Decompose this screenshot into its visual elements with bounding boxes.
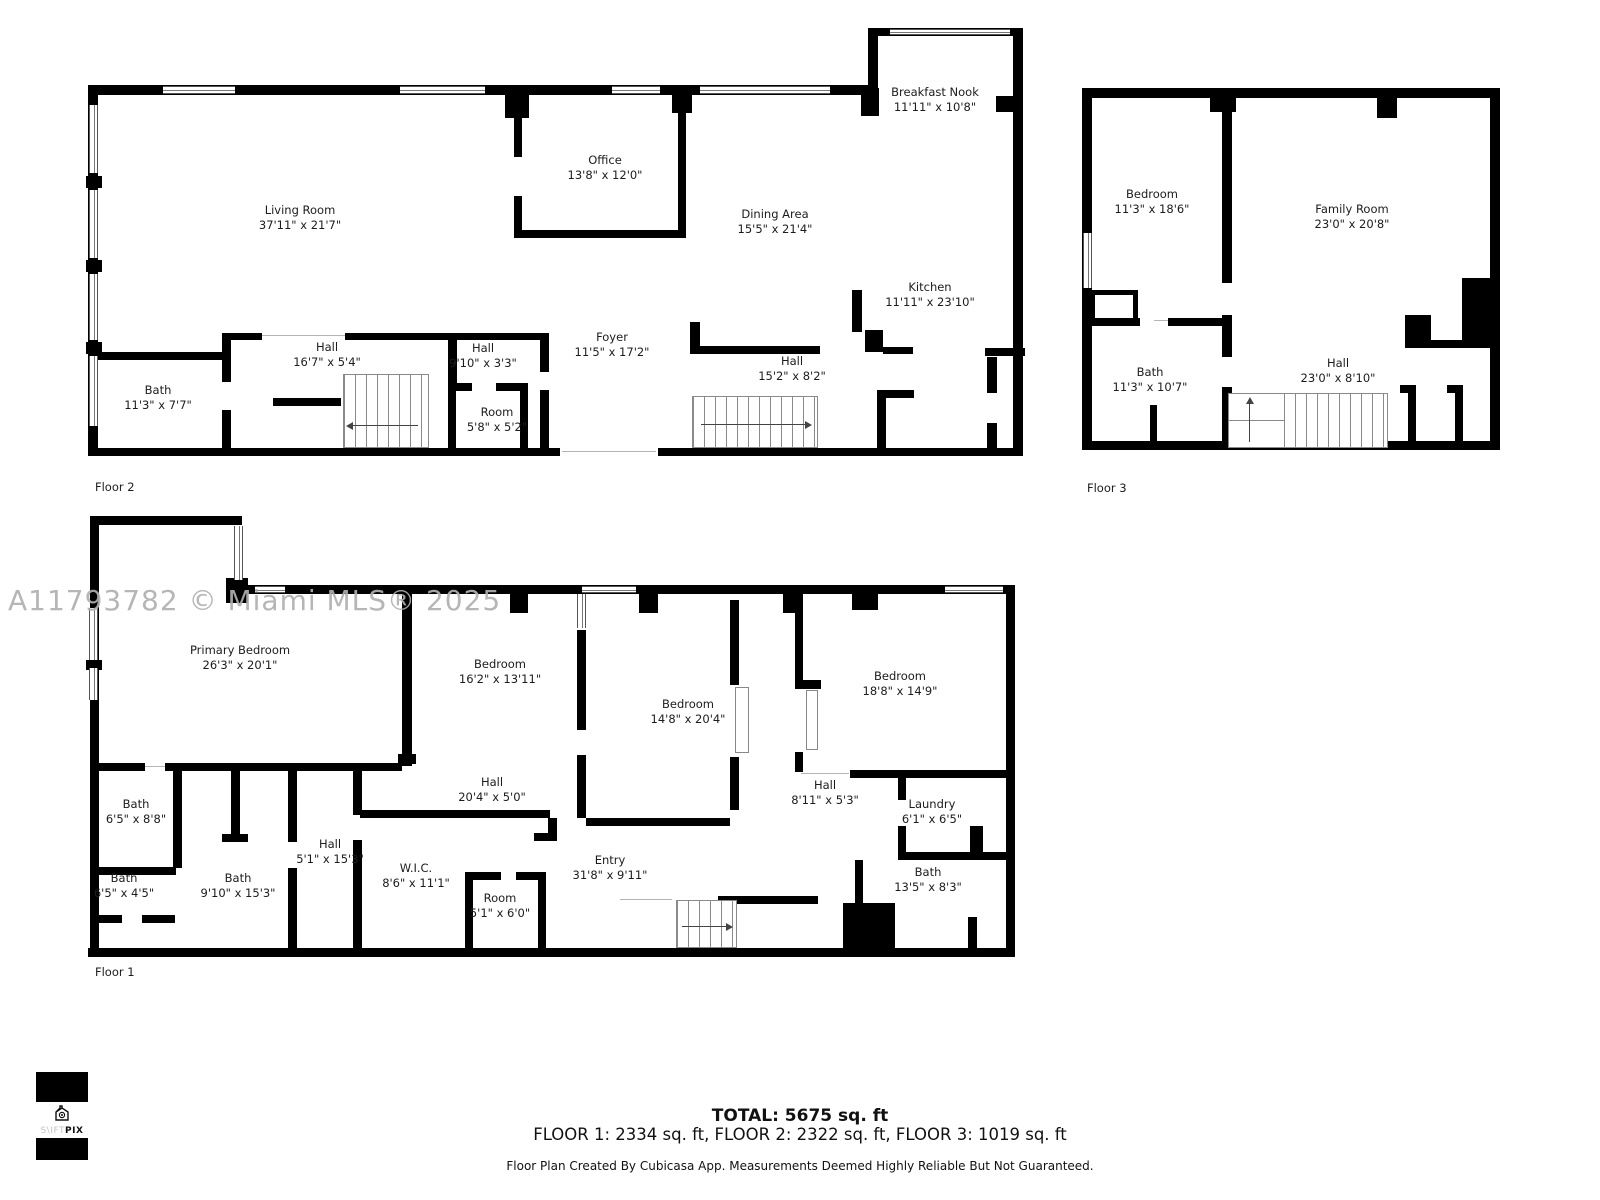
wall xyxy=(795,590,803,682)
wall xyxy=(898,852,1006,860)
stairs-floor3 xyxy=(1228,393,1388,448)
door-leaf xyxy=(806,690,818,750)
wall xyxy=(92,915,122,923)
wall xyxy=(86,260,102,272)
wall xyxy=(448,383,456,448)
room-label-hall-9-10: Hall9'10" x 3'3" xyxy=(449,341,517,371)
wall xyxy=(730,757,739,810)
wall xyxy=(456,383,472,391)
stairs-floor1-entry xyxy=(676,900,737,948)
wall xyxy=(534,833,557,841)
wall xyxy=(1408,385,1416,441)
wall xyxy=(795,680,821,689)
wall xyxy=(996,96,1013,112)
window xyxy=(89,668,98,700)
wall xyxy=(1082,88,1500,98)
window xyxy=(400,86,485,94)
wall xyxy=(1006,585,1015,957)
wall xyxy=(222,333,231,382)
wall xyxy=(273,398,341,406)
wall xyxy=(850,770,1006,778)
wall xyxy=(222,410,231,448)
wall xyxy=(868,28,878,90)
room-label-breakfast-nook: Breakfast Nook11'11" x 10'8" xyxy=(891,85,979,115)
wall xyxy=(1400,385,1416,393)
wall xyxy=(540,390,549,448)
wall xyxy=(360,810,550,818)
wall xyxy=(730,600,739,685)
room-label-bath-9-10: Bath9'10" x 15'3" xyxy=(201,871,276,901)
room-label-office: Office13'8" x 12'0" xyxy=(568,153,643,183)
door-opening xyxy=(620,899,672,900)
room-label-bedroom-16-2: Bedroom16'2" x 13'11" xyxy=(459,657,541,687)
wall xyxy=(1455,385,1463,441)
wall xyxy=(1462,278,1498,348)
wall xyxy=(288,770,297,842)
room-label-bedroom-18-8: Bedroom18'8" x 14'9" xyxy=(863,669,938,699)
window xyxy=(89,105,98,173)
room-label-bath-6-5-4-5: Bath6'5" x 4'5" xyxy=(94,871,154,901)
wall xyxy=(538,880,546,948)
wall xyxy=(987,423,997,448)
room-label-hall-f3: Hall23'0" x 8'10" xyxy=(1301,356,1376,386)
wall xyxy=(987,357,997,393)
wall xyxy=(658,448,1023,456)
window xyxy=(163,86,235,94)
logo-block-top xyxy=(36,1072,88,1102)
wall xyxy=(540,333,549,372)
wall xyxy=(861,88,879,116)
wall xyxy=(353,770,362,815)
window xyxy=(89,274,98,340)
wall xyxy=(222,333,262,340)
room-label-hall-15-2: Hall15'2" x 8'2" xyxy=(758,354,826,384)
wall xyxy=(577,755,586,818)
wall xyxy=(1013,28,1023,456)
wall xyxy=(1090,290,1138,295)
room-label-hall-20-4: Hall20'4" x 5'0" xyxy=(458,775,526,805)
wall xyxy=(222,834,248,842)
wall xyxy=(510,585,528,613)
room-label-room-f2: Room5'8" x 5'2" xyxy=(467,405,527,435)
wall xyxy=(586,818,730,826)
wall xyxy=(1405,315,1431,348)
wall xyxy=(970,826,983,852)
wall xyxy=(843,903,895,949)
wall xyxy=(96,352,224,360)
floor-plan-canvas: Living Room37'11" x 21'7" Office13'8" x … xyxy=(0,0,1600,1200)
window xyxy=(1083,233,1092,288)
room-label-hall-8-11: Hall8'11" x 5'3" xyxy=(791,778,859,808)
window xyxy=(612,86,660,94)
swiftpix-logo: S\IFTPIX xyxy=(36,1072,88,1160)
room-label-bath-f2: Bath11'3" x 7'7" xyxy=(124,383,192,413)
wall xyxy=(473,872,501,880)
wall xyxy=(496,383,528,391)
wall xyxy=(345,333,540,340)
summary-total: TOTAL: 5675 sq. ft xyxy=(0,1106,1600,1126)
wall xyxy=(577,630,586,730)
room-label-primary-bedroom: Primary Bedroom26'3" x 20'1" xyxy=(190,643,290,673)
wall xyxy=(1222,98,1232,283)
room-label-kitchen: Kitchen11'11" x 23'10" xyxy=(885,280,975,310)
wall xyxy=(985,348,1025,356)
room-label-bedroom-f3: Bedroom11'3" x 18'6" xyxy=(1115,187,1190,217)
summary-disclaimer: Floor Plan Created By Cubicasa App. Meas… xyxy=(0,1159,1600,1173)
window xyxy=(582,586,636,593)
door-opening xyxy=(801,773,849,774)
room-label-foyer: Foyer11'5" x 17'2" xyxy=(575,330,650,360)
wall xyxy=(516,872,546,880)
wall xyxy=(678,85,686,238)
summary-floor-breakdown: FLOOR 1: 2334 sq. ft, FLOOR 2: 2322 sq. … xyxy=(0,1125,1600,1144)
wall xyxy=(1490,88,1500,450)
wall xyxy=(142,915,175,923)
room-label-living-room: Living Room37'11" x 21'7" xyxy=(259,203,341,233)
room-label-room-f1: Room5'1" x 6'0" xyxy=(470,891,530,921)
room-label-hall-5-1: Hall5'1" x 15'3" xyxy=(296,837,364,867)
wall xyxy=(1447,385,1463,393)
wall xyxy=(968,917,977,948)
window xyxy=(89,356,98,426)
wall xyxy=(514,230,686,238)
wall xyxy=(877,390,886,448)
wall xyxy=(86,176,102,188)
wall xyxy=(639,585,658,613)
room-label-bath-f3: Bath11'3" x 10'7" xyxy=(1113,365,1188,395)
stairs-floor2-foyer xyxy=(692,396,818,448)
wall xyxy=(288,868,297,948)
wall xyxy=(795,752,803,772)
wall xyxy=(852,290,862,332)
room-label-bath-6-5-8-8: Bath6'5" x 8'8" xyxy=(106,797,166,827)
window xyxy=(577,594,586,628)
wall xyxy=(514,95,522,157)
door-opening xyxy=(1154,320,1168,321)
room-label-entry: Entry31'8" x 9'11" xyxy=(573,853,648,883)
mls-watermark: A11793782 © Miami MLS® 2025 xyxy=(8,584,501,617)
wall xyxy=(88,948,1015,957)
wall xyxy=(698,346,820,354)
door-opening xyxy=(145,766,165,767)
wall xyxy=(898,826,906,852)
wall xyxy=(165,763,402,771)
room-label-laundry: Laundry6'1" x 6'5" xyxy=(902,797,962,827)
door-leaf xyxy=(735,687,749,753)
room-label-dining-area: Dining Area15'5" x 21'4" xyxy=(738,207,813,237)
floor2-tag: Floor 2 xyxy=(95,480,135,494)
wall xyxy=(1133,290,1138,318)
wall xyxy=(852,590,878,610)
room-label-family-room: Family Room23'0" x 20'8" xyxy=(1315,202,1390,232)
window xyxy=(700,86,830,94)
stairs-floor2-left xyxy=(343,374,429,448)
window xyxy=(890,29,1010,35)
wall xyxy=(92,516,242,525)
logo-block-bottom xyxy=(36,1138,88,1160)
door-opening xyxy=(262,335,345,336)
room-label-bath-13-5: Bath13'5" x 8'3" xyxy=(894,865,962,895)
house-camera-icon xyxy=(36,1104,88,1126)
room-label-bedroom-14-8: Bedroom14'8" x 20'4" xyxy=(651,697,726,727)
wall xyxy=(886,390,914,398)
wall xyxy=(1090,290,1095,318)
wall xyxy=(883,347,913,354)
wall xyxy=(231,770,240,838)
wall xyxy=(1222,315,1232,357)
window xyxy=(89,190,98,258)
room-label-hall-16-7: Hall16'7" x 5'4" xyxy=(293,340,361,370)
wall xyxy=(1084,318,1140,326)
wall xyxy=(97,763,145,771)
logo-wordmark: S\IFTPIX xyxy=(36,1127,88,1136)
wall xyxy=(88,448,560,456)
wall xyxy=(865,330,883,352)
wall xyxy=(1168,318,1222,326)
floor1-tag: Floor 1 xyxy=(95,965,135,979)
wall xyxy=(1377,88,1397,118)
floor3-tag: Floor 3 xyxy=(1087,481,1127,495)
window xyxy=(234,526,243,580)
wall xyxy=(173,770,182,868)
door-opening xyxy=(562,451,656,452)
room-label-wic: W.I.C.8'6" x 11'1" xyxy=(382,861,450,891)
wall xyxy=(1150,405,1157,441)
window xyxy=(945,586,1003,593)
wall xyxy=(855,860,863,905)
